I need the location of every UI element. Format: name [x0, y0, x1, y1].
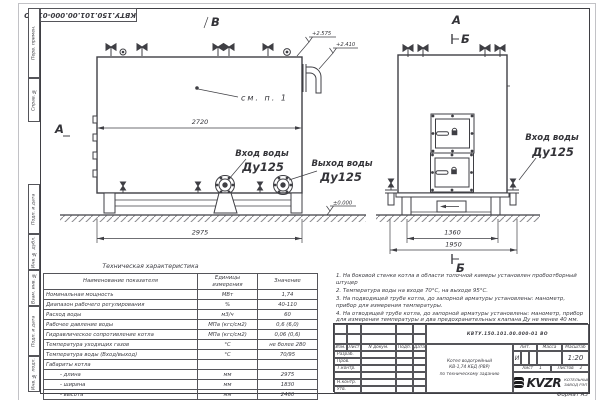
right-side-fitting	[507, 179, 519, 205]
tb-col-list: Лист	[347, 344, 361, 351]
tb-scale-header: Масштаб	[562, 344, 589, 351]
air-valve-icon	[106, 44, 116, 56]
svg-text:Вход воды: Вход воды	[235, 149, 289, 159]
tb-lit-header: Лит.	[513, 344, 537, 351]
tech-col-name: Наименование показателя	[44, 274, 198, 290]
side-view: 2720 2975	[54, 15, 373, 243]
table-row: Расход водым3/ч60	[44, 310, 318, 320]
ground-hatch	[376, 216, 540, 223]
tb-sheets: Листов2	[551, 365, 589, 372]
ash-drawer	[437, 201, 466, 212]
tb-row-nkontr: Н.контр.	[334, 379, 361, 386]
format-label: Формат А3	[500, 392, 588, 398]
air-valve-icon	[137, 44, 147, 56]
drawing-title: Котел водогрейный КВ-1,74 КБД (РВР) по т…	[426, 344, 513, 393]
tb-mass-header: Масса	[537, 344, 562, 351]
svg-text:Вход воды: Вход воды	[525, 133, 579, 143]
tb-row-blank	[334, 372, 361, 379]
svg-text:1360: 1360	[444, 229, 461, 237]
section-marker-B-top: Б	[452, 32, 470, 46]
view-label-A-top: А	[451, 13, 461, 27]
table-row: Температура уходящих газов°Сне более 280	[44, 340, 318, 350]
dim-1360: 1360	[407, 219, 498, 243]
svg-text:Б: Б	[461, 32, 470, 46]
drawing-sheet: КВТУ.150.101.00.000-01 ВО Перв. примен. …	[0, 0, 600, 400]
svg-text:Ду125: Ду125	[241, 160, 284, 174]
tech-col-units: Единицы измерения	[198, 274, 258, 290]
tb-lit-value: И	[513, 351, 521, 365]
view-label-B-top: В	[211, 15, 220, 29]
view-label-A-left: А	[54, 122, 64, 136]
tb-col-podp: Подп.	[396, 344, 413, 351]
svg-text:Ду125: Ду125	[319, 170, 362, 184]
tech-table: Наименование показателя Единицы измерени…	[43, 273, 318, 400]
elevation-mark-zero: ±0.000	[327, 201, 357, 216]
front-inlet-label: Вход воды Ду125	[519, 133, 579, 180]
table-row: Рабочее давление водыМПа (кгс/см2)0,6 (6…	[44, 320, 318, 330]
left-side-fitting	[385, 179, 397, 205]
table-row: Гидравлическое сопротивление котлаМПа (к…	[44, 330, 318, 340]
front-view: 1360 1950 Б Б А Вход	[376, 13, 579, 275]
svg-text:+2.410: +2.410	[336, 42, 356, 48]
tech-table-title: Техническая характеристика	[43, 263, 258, 270]
svg-text:см. п. 1: см. п. 1	[241, 94, 288, 103]
ground-hatch	[60, 216, 366, 223]
drawing-title-line2: КВ-1,74 КБД (РВР)	[449, 365, 490, 372]
company-logo: KVZR КОТЕЛЬНЫЙЗАВОД РЭП	[513, 372, 589, 393]
air-valve-icon	[213, 44, 223, 56]
elevation-mark-top: +2.575	[297, 31, 336, 56]
svg-text:+2.575: +2.575	[312, 31, 332, 37]
note-2: 2. Температура воды на входе 70°С, на вы…	[336, 288, 587, 295]
lower-door-icon	[431, 153, 474, 192]
tb-row-razrab: Разраб.	[334, 351, 361, 358]
table-row: - ширинамм1830	[44, 380, 318, 390]
table-row: - высотамм2460	[44, 390, 318, 400]
title-block: Изм. Лист N докум. Подп. Дата Разраб. Пр…	[333, 323, 588, 392]
upper-door-icon	[431, 114, 474, 153]
table-row: Номинальная мощностьМВт1,74	[44, 290, 318, 300]
svg-text:Ду125: Ду125	[531, 145, 574, 159]
air-valve-icon	[224, 44, 234, 56]
tb-col-data: Дата	[413, 344, 426, 351]
tb-sheet: Лист1	[513, 365, 551, 372]
kvzr-emblem-icon	[513, 377, 524, 388]
tb-row-utv: Утв.	[334, 386, 361, 393]
tb-mass-value	[537, 351, 562, 365]
kvzr-logo-subtitle: КОТЕЛЬНЫЙЗАВОД РЭП	[564, 378, 589, 387]
table-row: - длинамм2975	[44, 370, 318, 380]
svg-text:2720: 2720	[192, 118, 209, 126]
note-3: 3. На подводящей трубе котла, до запорно…	[336, 296, 587, 310]
tb-row-tkontr: Т.контр.	[334, 365, 361, 372]
tb-scale-value: 1:20	[562, 351, 589, 365]
tb-row-prov: Пров.	[334, 358, 361, 365]
tb-col-docnum: N докум.	[361, 344, 396, 351]
tb-col-izm: Изм.	[334, 344, 347, 351]
note-1: 1. На боковой стенке котла в области топ…	[336, 273, 587, 287]
table-row: Диапазон рабочего регулирования%40-110	[44, 300, 318, 310]
title-block-doc-number: КВТУ.150.101.00.000-01 ВО	[426, 324, 589, 344]
section-marker-B-bottom: Б	[452, 254, 465, 275]
table-row: Температура воды (Вход/выход)°С70/95	[44, 350, 318, 360]
kvzr-logo-text: KVZR	[527, 376, 562, 390]
svg-text:2975: 2975	[192, 229, 209, 237]
elevation-mark-mid: +2.410	[319, 42, 358, 69]
svg-text:±0.000: ±0.000	[333, 201, 353, 207]
drawing-title-line3: по техническому заданию	[440, 372, 500, 379]
dim-2975: 2975	[97, 219, 302, 243]
tech-col-value: Значение	[258, 274, 318, 290]
flue-outlet-pipe	[303, 64, 321, 93]
table-row: Габариты котла	[44, 360, 318, 370]
svg-text:Выход воды: Выход воды	[311, 159, 372, 169]
svg-text:1950: 1950	[445, 241, 462, 249]
air-valve-icon	[263, 44, 273, 56]
